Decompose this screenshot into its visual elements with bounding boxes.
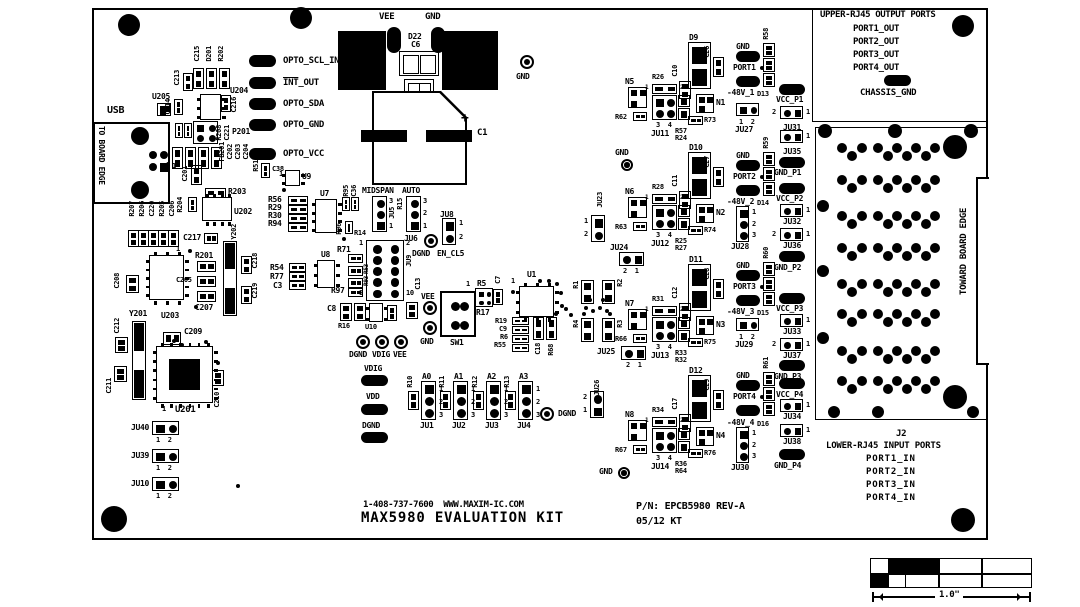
label-1-2: 1 2: [156, 465, 172, 472]
label-a1: A1: [454, 373, 463, 381]
jumper-ju26: [590, 391, 604, 418]
label-c28: C28: [704, 268, 711, 280]
label-ju28: JU28: [731, 243, 749, 251]
label-ju5: JU5: [389, 207, 396, 219]
label-ju25: JU25: [597, 348, 615, 356]
rj45-pad: [892, 175, 902, 185]
silkscreen-fill: [976, 179, 978, 363]
rj45-pad: [911, 376, 921, 386]
solder-pad: [736, 380, 760, 391]
label-r67: R67: [615, 447, 627, 454]
label-r1: R1: [573, 281, 580, 289]
component-footprint: [197, 276, 216, 287]
component-footprint: [679, 303, 691, 321]
rj45-pad: [873, 175, 883, 185]
rj45-pad: [847, 384, 857, 394]
drill-pad: [236, 484, 240, 488]
label-r97: R97: [331, 287, 345, 295]
jumper-ju34: [780, 399, 803, 412]
label-vcc-p3: VCC_P3: [776, 305, 803, 313]
rj45-pad: [911, 143, 921, 153]
component-footprint: [174, 99, 183, 115]
label-r71: R71: [337, 246, 351, 254]
label-ju34: JU34: [783, 413, 801, 421]
solder-pad: [249, 55, 276, 67]
label-u204: U204: [230, 87, 248, 95]
label-2: 2: [772, 231, 776, 238]
component-footprint: [197, 261, 216, 272]
label-3-4: 3 4: [656, 455, 672, 462]
label-r27: R27: [675, 245, 687, 252]
label-ju13: JU13: [651, 352, 669, 360]
drill-pad: [582, 312, 586, 316]
rj45-pad: [902, 183, 912, 193]
label-1-2: 1 2: [156, 437, 172, 444]
rj45-pad: [930, 376, 940, 386]
label-r17: R17: [476, 309, 490, 317]
label-ju23: JU23: [597, 192, 604, 208]
label-r55: R55: [494, 342, 506, 349]
label-r77: R77: [270, 273, 284, 281]
component-footprint: [763, 402, 775, 416]
component-footprint: [633, 222, 647, 231]
scale-arrow-tick: [1029, 592, 1031, 602]
label-r206: R206: [139, 201, 146, 217]
drill-pad: [194, 305, 198, 309]
drill-pad: [282, 188, 286, 192]
label-u203: U203: [161, 312, 179, 320]
label-r95: R95: [343, 185, 350, 197]
component-footprint: [505, 391, 516, 410]
drill-pad: [828, 406, 840, 418]
label--48v-1: -48V_1: [727, 89, 754, 97]
rj45-pad: [921, 151, 931, 161]
component-footprint: [533, 317, 544, 340]
solder-pad: [779, 378, 805, 389]
component-footprint: [261, 163, 270, 178]
label-r4: R4: [573, 320, 580, 328]
rj45-pad: [902, 317, 912, 327]
label-1: 1: [423, 223, 427, 230]
drill-pad: [555, 282, 559, 286]
label-r202: R202: [218, 46, 225, 62]
component-footprint: [288, 223, 308, 232]
label-1: 1: [645, 85, 648, 91]
component-footprint: [713, 57, 724, 77]
rj45-pad: [892, 143, 902, 153]
mounting-hole: [118, 14, 140, 36]
component-footprint: [652, 194, 677, 204]
component-footprint: [512, 335, 529, 343]
label-vdig: VDIG: [372, 351, 390, 359]
rj45-pad: [911, 211, 921, 221]
label-ju29: JU29: [735, 341, 753, 349]
drill-pad: [342, 237, 346, 241]
jumper-ju3: [486, 381, 501, 420]
component-footprint: [241, 286, 252, 304]
board-cutout: [979, 179, 989, 363]
label-u7: U7: [320, 190, 329, 198]
solder-pad: [779, 360, 805, 371]
test-point: [375, 335, 389, 349]
component-footprint: [763, 152, 775, 166]
drill-pad: [588, 298, 592, 302]
label-u1: U1: [527, 271, 536, 279]
label-c219: C219: [252, 283, 259, 299]
component-footprint: [688, 338, 703, 347]
label-r64: R64: [675, 468, 687, 475]
component-footprint: [241, 256, 252, 274]
label-ju3: JU3: [485, 422, 499, 430]
component-footprint: [763, 372, 775, 386]
gnd-terminal: [431, 27, 445, 53]
mounting-hole: [952, 15, 974, 37]
drill-pad: [598, 306, 602, 310]
component-footprint: [191, 165, 202, 185]
label-auto: AUTO: [402, 187, 420, 195]
rj45-pad: [911, 279, 921, 289]
label-vcc-p4: VCC_P4: [776, 391, 803, 399]
rj45-pad: [837, 376, 847, 386]
label-c204: C204: [243, 144, 250, 160]
solder-pad: [361, 432, 388, 443]
label-c216: C216: [231, 97, 238, 113]
label-r12: R12: [472, 376, 479, 388]
jumper-ju10: [152, 477, 179, 491]
rj45-pad: [883, 287, 893, 297]
label-r68: R68: [548, 344, 555, 356]
label-a3: A3: [519, 373, 528, 381]
label-ju30: JU30: [731, 464, 749, 472]
rj45-pad: [873, 279, 883, 289]
label-n4: N4: [716, 432, 725, 440]
drill-pad: [591, 309, 595, 313]
solder-pad: [736, 295, 760, 306]
component-footprint: [348, 254, 363, 263]
ic-footprint: [315, 199, 337, 233]
drill-pad: [964, 124, 978, 138]
rj45-pad: [902, 354, 912, 364]
label-2-1: 2 1: [623, 268, 639, 275]
ic-footprint: [202, 197, 232, 221]
rj45-pad: [837, 279, 847, 289]
component-footprint: [652, 417, 677, 427]
rj45-pad: [930, 243, 940, 253]
component-footprint: [763, 292, 775, 306]
label-1: 1: [536, 386, 540, 393]
component-footprint: [763, 73, 775, 87]
component-footprint: [188, 197, 197, 212]
component-footprint: [408, 391, 419, 410]
rj45-pad: [930, 346, 940, 356]
label-r28: R28: [652, 184, 664, 191]
label-c29: C29: [704, 379, 711, 391]
jumper-ju38: [780, 424, 803, 437]
jumper-ju33: [780, 314, 803, 327]
label-c26: C26: [704, 46, 711, 58]
label-ju11: JU11: [651, 130, 669, 138]
label-1: 1: [806, 207, 810, 214]
drill-pad: [817, 265, 829, 277]
label-n7: N7: [625, 300, 634, 308]
rj45-pad: [892, 309, 902, 319]
ic-footprint: [369, 303, 383, 322]
component-footprint: [512, 317, 529, 325]
jumper-ju6: [406, 196, 421, 232]
component-footprint: [763, 43, 775, 57]
silkscreen-fill: [426, 130, 472, 142]
label-ju38: JU38: [783, 438, 801, 446]
jumper-ju30: [736, 427, 749, 463]
component-footprint: [288, 196, 308, 205]
label-9: 9: [359, 290, 363, 297]
rj45-pad: [911, 309, 921, 319]
label-c213: C213: [174, 70, 181, 86]
label-d11: D11: [689, 256, 703, 264]
rj45-pad: [921, 251, 931, 261]
drill-pad: [131, 181, 149, 199]
label-c9: C9: [499, 326, 507, 333]
label-vee: VEE: [421, 293, 435, 301]
label-1: 1: [806, 402, 810, 409]
label-r208: R208: [216, 125, 223, 141]
label-1: 1: [359, 240, 363, 247]
component-footprint: [211, 147, 222, 169]
jumper-ju8: [442, 218, 456, 245]
rj45-pad: [892, 211, 902, 221]
label-r14: R14: [354, 230, 366, 237]
label-a0: A0: [422, 373, 431, 381]
jumper-ju28: [736, 206, 749, 242]
jumper-ju32: [780, 204, 803, 217]
rj45-pad: [883, 317, 893, 327]
label-r34: R34: [652, 407, 664, 414]
component-footprint: [763, 277, 775, 291]
label-2: 2: [423, 210, 427, 217]
component-footprint: [354, 303, 366, 321]
test-point: [618, 467, 630, 479]
label-c220: C220: [149, 201, 156, 217]
label-r51: R51: [253, 160, 260, 172]
jumper-ju25: [621, 346, 646, 360]
drill-pad: [872, 406, 884, 418]
label-r61: R61: [763, 357, 770, 369]
label-gnd: GND: [736, 152, 750, 160]
label-d13: D13: [757, 91, 769, 98]
label-3-4: 3 4: [656, 344, 672, 351]
label-r16: R16: [338, 323, 350, 330]
drill-pad: [204, 340, 208, 344]
label-r5: R5: [477, 280, 486, 288]
rj45-pad: [921, 384, 931, 394]
component-footprint: [115, 337, 128, 353]
label-port4: PORT4: [733, 393, 756, 401]
drill-pad: [888, 124, 902, 138]
solder-pad: [249, 98, 276, 110]
label: +: [461, 112, 469, 125]
label-r24: R24: [675, 135, 687, 142]
label-r13: R13: [504, 376, 511, 388]
jumper-ju31: [780, 106, 803, 119]
rj45-pad: [911, 346, 921, 356]
pcb-silkscreen-drawing: UPPER-RJ45 OUTPUT PORTS PORT1_OUT PORT2_…: [0, 0, 1080, 607]
label-r60: R60: [763, 247, 770, 259]
label-1: 1: [645, 418, 648, 424]
label-ju2: JU2: [452, 422, 466, 430]
label-1: 1: [806, 341, 810, 348]
drill-pad: [817, 332, 829, 344]
label-port1: PORT1: [733, 64, 756, 72]
label-1: 1: [806, 317, 810, 324]
component-footprint: [633, 445, 647, 454]
component-footprint: [197, 291, 216, 302]
rj45-pad: [837, 143, 847, 153]
label-1: 1: [389, 223, 393, 230]
label-3: 3: [504, 412, 508, 419]
jumper: [475, 288, 493, 307]
label-r3: R3: [617, 320, 624, 328]
label-ju39: JU39: [131, 452, 149, 460]
component-footprint: [512, 344, 529, 352]
drill-pad: [180, 343, 184, 347]
label-1: 1: [752, 430, 756, 437]
label-vdd: VDD: [366, 393, 380, 401]
label-d201: D201: [206, 46, 213, 62]
jumper-ju14: [652, 428, 677, 453]
component-footprint: [581, 318, 594, 342]
rj45-pad: [873, 346, 883, 356]
copper-pour: [338, 31, 386, 90]
drill-pad: [967, 406, 979, 418]
label-gnd: GND: [736, 262, 750, 270]
label--48v-2: -48V_2: [727, 198, 754, 206]
label-vee: VEE: [393, 351, 407, 359]
component-footprint: [289, 272, 306, 281]
label-opto-sda: OPTO_SDA: [283, 100, 324, 109]
rj45-pad: [837, 211, 847, 221]
label-c205: C205: [176, 277, 192, 284]
component-footprint: [183, 73, 193, 91]
label-1: 1: [752, 209, 756, 216]
drill-pad: [818, 124, 832, 138]
label-r19: R19: [495, 318, 507, 325]
label-c27: C27: [704, 156, 711, 168]
label-u201: U201: [175, 406, 195, 415]
drill-pad: [559, 291, 563, 295]
solder-pad: [736, 160, 760, 171]
label-d9: D9: [689, 34, 698, 42]
label-3: 3: [439, 412, 443, 419]
component-footprint: [652, 84, 677, 94]
component-footprint: [289, 263, 306, 272]
component-footprint: [633, 112, 647, 121]
label-c8: C8: [327, 305, 336, 313]
test-point: [424, 234, 438, 248]
label-gnd: GND: [425, 13, 440, 22]
solder-pad: [736, 270, 760, 281]
component-footprint: [493, 289, 503, 305]
label-c221: C221: [224, 125, 231, 141]
rj45-pad: [837, 243, 847, 253]
component-footprint: [763, 167, 775, 181]
jumper-ju40: [152, 421, 179, 435]
vee-terminal: [387, 27, 401, 53]
label-r31: R31: [652, 296, 664, 303]
label-y202: Y202: [231, 224, 238, 240]
label-3: 3: [423, 198, 427, 205]
component-footprint: [193, 68, 204, 89]
component-footprint: [206, 68, 217, 89]
rj45-pad: [930, 211, 940, 221]
label-r10: R10: [407, 376, 414, 388]
component-footprint: [406, 302, 418, 319]
switch-sw1: [440, 291, 476, 337]
label-u8: U8: [321, 251, 330, 259]
rj45-pad: [847, 219, 857, 229]
crystal-footprint: [132, 321, 146, 400]
rj45-pad: [902, 219, 912, 229]
label-ju33: JU33: [783, 328, 801, 336]
jumper-ju13: [652, 317, 677, 342]
component-footprint: [340, 303, 352, 321]
solder-pad: [779, 251, 805, 262]
label-n1: N1: [716, 99, 725, 107]
jumper-ju4: [518, 381, 533, 420]
solder-pad: [736, 76, 760, 87]
scale-arrow-tick: [872, 592, 874, 602]
label-1: 1: [166, 162, 170, 169]
rj45-pad: [892, 279, 902, 289]
rj45-pad: [883, 151, 893, 161]
rj45-pad: [930, 309, 940, 319]
scale-bar: [870, 558, 1032, 588]
rj45-pad: [847, 317, 857, 327]
drill-pad: [584, 306, 588, 310]
rj45-pad: [921, 287, 931, 297]
drill-pad: [569, 313, 573, 317]
label-c36: C36: [351, 185, 358, 197]
label-gnd: GND: [516, 73, 530, 81]
jumper-ju29: [736, 318, 759, 331]
drill-pad: [608, 312, 612, 316]
component-footprint: [763, 182, 775, 196]
rj45-pad: [873, 376, 883, 386]
ic-footprint: [285, 170, 300, 186]
label-1: 1: [584, 218, 588, 225]
component-footprint: [126, 275, 139, 293]
rj45-pad: [921, 354, 931, 364]
solder-pad: [779, 449, 805, 460]
mounting-hole: [943, 385, 967, 409]
transistor-n3: [696, 316, 714, 335]
label-d14: D14: [757, 200, 769, 207]
rj45-pad: [873, 243, 883, 253]
component-footprint: [399, 51, 439, 76]
rj45-pad: [902, 251, 912, 261]
component-footprint: [688, 449, 703, 458]
component-footprint: [351, 197, 359, 211]
solder-pad: [361, 404, 388, 415]
component-footprint: [602, 318, 615, 342]
label-en-cl5: EN_CL5: [437, 250, 464, 258]
component-footprint: [288, 214, 308, 223]
crystal-footprint: [223, 241, 237, 316]
label-c17: C17: [672, 398, 679, 410]
label-r6: R6: [500, 334, 508, 341]
component-footprint: [387, 305, 397, 321]
rj45-pad: [930, 175, 940, 185]
label-c208: C208: [114, 273, 121, 289]
